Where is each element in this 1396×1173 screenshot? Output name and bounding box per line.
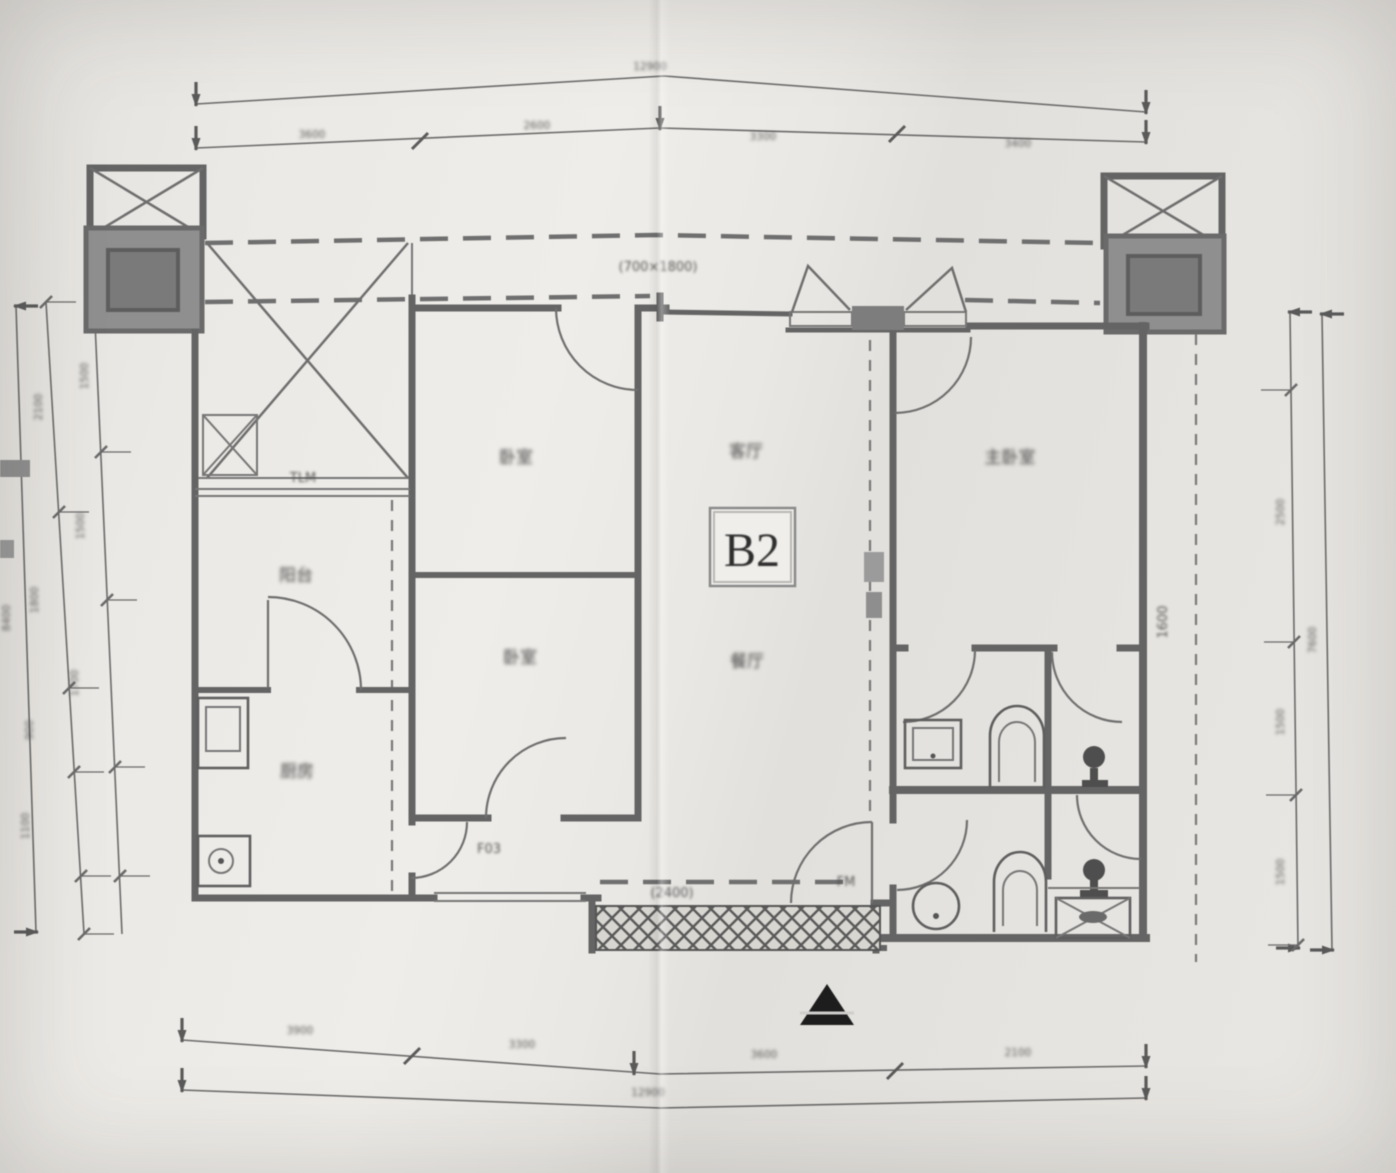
left-dimension-lines: 8400 2100 1800 900 1100 1500 1500 1700 (0, 294, 150, 940)
canopy-annotation: (700×1800) (619, 260, 698, 275)
left-inner-segment-dimension: 1500 (79, 363, 91, 390)
lightwell-cross (195, 243, 412, 478)
right-segment-dimension: 1500 (1275, 709, 1287, 736)
floor-plan-drawing: 12900 3600 2600 3300 3400 3900 3300 3600… (0, 0, 1396, 1173)
living-room-casement-windows (788, 266, 968, 330)
column-top-right (1104, 176, 1224, 332)
column-top-left (86, 168, 203, 331)
top-segment-dimension: 3300 (750, 131, 777, 143)
room-label-kitchen: 厨房 (280, 762, 314, 782)
left-segment-dimension: 1100 (20, 813, 32, 840)
entry-door-arc (791, 822, 872, 903)
room-label-bedroom-bottom: 卧室 (503, 648, 537, 668)
bottom-segment-dimension: 2100 (1005, 1047, 1032, 1059)
bottom-total-dimension: 12900 (631, 1087, 664, 1099)
scanned-floor-plan-page: 12900 3600 2600 3300 3400 3900 3300 3600… (0, 0, 1396, 1173)
top-segment-dimension: 2600 (524, 120, 551, 132)
left-segment-dimension: 1800 (29, 587, 41, 614)
room-label-balcony: 阳台 (279, 566, 313, 586)
casement-swing-icon (792, 266, 850, 312)
left-inner-segment-dimension: 1500 (75, 513, 87, 540)
bottom-segment-dimension: 3900 (287, 1025, 314, 1037)
shower-door-arc (1077, 795, 1141, 859)
master-bedroom-door-arc (895, 337, 971, 413)
casement-swing-icon (906, 268, 966, 312)
bathroom-bottom-door-arc (897, 820, 967, 890)
bathroom-fixtures (864, 552, 1140, 938)
wall-stub (864, 552, 884, 582)
right-total-dimension: 7600 (1307, 627, 1319, 654)
room-label-dining: 餐厅 (730, 652, 764, 672)
left-inner-segment-dimension: 1700 (69, 670, 81, 697)
kitchen-door-arc (411, 822, 467, 878)
room-label-master-bedroom: 主卧室 (985, 448, 1036, 468)
right-segment-dimension: 2500 (1275, 499, 1287, 526)
top-dimension-lines: 12900 3600 2600 3300 3400 (192, 61, 1151, 151)
room-label-living: 客厅 (729, 442, 763, 462)
left-segment-dimension: 900 (24, 720, 36, 740)
bathroom-top-door-arc (903, 650, 975, 722)
doors (268, 308, 1141, 903)
entry-marker-triangle (800, 984, 854, 1025)
top-segment-dimension: 3600 (299, 129, 326, 141)
shower-head-icon (1082, 746, 1108, 787)
entry-hatch (596, 906, 880, 950)
top-total-dimension: 12900 (633, 61, 666, 73)
sliding-door-code: TLM (289, 471, 316, 486)
bottom-segment-dimension: 3600 (751, 1049, 778, 1061)
kitchen-fixtures (198, 698, 250, 886)
wall-stub (0, 540, 14, 558)
bedroom-bottom-door-arc (486, 738, 566, 818)
entry-door-code: FM (837, 875, 856, 890)
balcony-door-arc (268, 597, 361, 690)
balcony-sliding-door (195, 489, 410, 496)
left-total-dimension: 8400 (1, 605, 13, 632)
bedroom-top-door-arc (556, 308, 638, 390)
right-dimension-lines: 2500 1500 1500 7600 1600 (1156, 308, 1344, 955)
wall-stub (866, 592, 882, 618)
window-mullion (852, 306, 904, 330)
unit-label-box: B2 (710, 508, 795, 586)
left-segment-dimension: 2100 (33, 394, 45, 421)
ensuite-door-arc (1052, 652, 1122, 722)
right-side-note: 1600 (1156, 605, 1171, 638)
toilet-icon (990, 706, 1044, 788)
window-code: F03 (477, 842, 501, 857)
right-segment-dimension: 1500 (1275, 859, 1287, 886)
bottom-dimension-lines: 3900 3300 3600 2100 12900 (178, 1018, 1151, 1108)
bottom-segment-dimension: 3300 (509, 1039, 536, 1051)
toilet-icon (994, 852, 1046, 932)
round-sink-icon (913, 883, 959, 929)
room-label-bedroom-top: 卧室 (499, 448, 533, 468)
top-segment-dimension: 3400 (1005, 138, 1032, 150)
shower-head-icon (1080, 859, 1108, 897)
sink-icon (905, 720, 961, 768)
wall-stub (0, 460, 30, 477)
entry-width-annotation: (2400) (650, 886, 693, 901)
corridor-window (434, 893, 586, 901)
unit-label: B2 (724, 524, 780, 577)
